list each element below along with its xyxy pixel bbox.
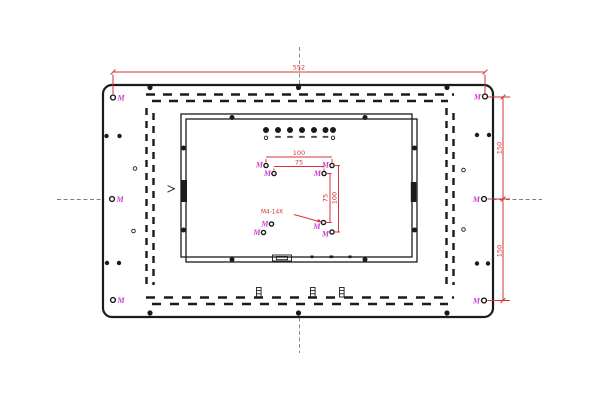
osd-button xyxy=(275,127,281,133)
vesa-hole-label: M xyxy=(321,161,330,170)
screw-dot xyxy=(104,134,108,138)
vesa-hole-label: M xyxy=(260,220,269,229)
vesa-hole xyxy=(261,230,265,234)
mount-hole-label: M xyxy=(472,297,481,306)
panel-screw-dot xyxy=(181,228,186,233)
screw-dot xyxy=(105,261,109,265)
osd-button xyxy=(323,127,329,133)
outer-panel-outline xyxy=(103,85,493,317)
mount-hole xyxy=(111,298,116,303)
mount-hole-label: M xyxy=(473,93,482,102)
screw-dot xyxy=(444,310,449,315)
screw-dot xyxy=(296,310,301,315)
osd-button-label xyxy=(323,136,329,138)
side-bracket-bar xyxy=(182,180,188,202)
osd-button-label xyxy=(299,136,305,138)
osd-button-label xyxy=(287,136,293,138)
vesa-hole xyxy=(269,222,273,226)
dimension-value: 75 xyxy=(322,194,330,202)
vesa-hole-label: M xyxy=(321,230,330,239)
screw-dot xyxy=(117,134,121,138)
panel-screw-dot xyxy=(363,257,368,262)
screw-dot xyxy=(147,310,152,315)
screw-dot xyxy=(444,85,449,90)
osd-button-label xyxy=(275,136,281,138)
vesa-hole xyxy=(321,220,325,224)
edge-tick xyxy=(330,256,334,259)
dimension-value: 150 xyxy=(496,245,504,257)
panel-screw-dot xyxy=(181,146,186,151)
mount-hole xyxy=(482,298,487,303)
dimension-value: 100 xyxy=(331,192,339,204)
vesa-hole-label: M xyxy=(255,161,264,170)
mount-hole-label: M xyxy=(472,195,481,204)
side-bracket-bar xyxy=(411,182,417,202)
technical-drawing: M M M M M M M M M M M M M M 552 xyxy=(0,0,600,400)
screw-dot xyxy=(486,261,490,265)
vesa-hole xyxy=(330,163,334,167)
osd-button xyxy=(287,127,293,133)
panel-screw-dot xyxy=(230,115,235,120)
vesa-hole-label: M xyxy=(312,222,321,231)
osd-button xyxy=(263,127,269,133)
screw-dot xyxy=(296,85,301,90)
screw-dot xyxy=(475,133,479,137)
vesa-hole xyxy=(264,163,268,167)
osd-button xyxy=(330,127,336,133)
dimension-value: 100 xyxy=(293,149,305,157)
osd-button xyxy=(299,127,305,133)
thread-spec-label: M4-14X xyxy=(261,210,283,216)
vesa-hole-label: M xyxy=(313,169,322,178)
mount-hole xyxy=(482,197,487,202)
screw-dot xyxy=(487,133,491,137)
vesa-hole xyxy=(272,171,276,175)
edge-tick xyxy=(349,256,352,259)
drawing-canvas: M M M M M M M M M M M M M M 552 xyxy=(0,0,600,400)
osd-button xyxy=(311,127,317,133)
vesa-hole xyxy=(322,171,326,175)
dimension-value: 150 xyxy=(496,142,504,154)
panel-screw-dot xyxy=(230,257,235,262)
edge-tick xyxy=(311,256,314,259)
mount-hole xyxy=(111,95,116,100)
vesa-hole-label: M xyxy=(252,228,261,237)
panel-screw-dot xyxy=(412,146,417,151)
mount-hole-label: M xyxy=(117,296,126,305)
screw-dot xyxy=(147,85,152,90)
panel-screw-dot xyxy=(412,228,417,233)
mount-hole-label: M xyxy=(117,94,126,103)
osd-button-label xyxy=(311,136,317,138)
screw-dot xyxy=(475,261,479,265)
dimension-value: 552 xyxy=(293,64,305,72)
dimension-value: 75 xyxy=(295,159,303,167)
screw-dot xyxy=(117,261,121,265)
mount-hole-label: M xyxy=(116,195,125,204)
mount-hole xyxy=(483,94,488,99)
panel-screw-dot xyxy=(363,115,368,120)
mount-hole xyxy=(110,197,115,202)
vesa-hole-label: M xyxy=(263,169,272,178)
vesa-hole xyxy=(330,230,334,234)
